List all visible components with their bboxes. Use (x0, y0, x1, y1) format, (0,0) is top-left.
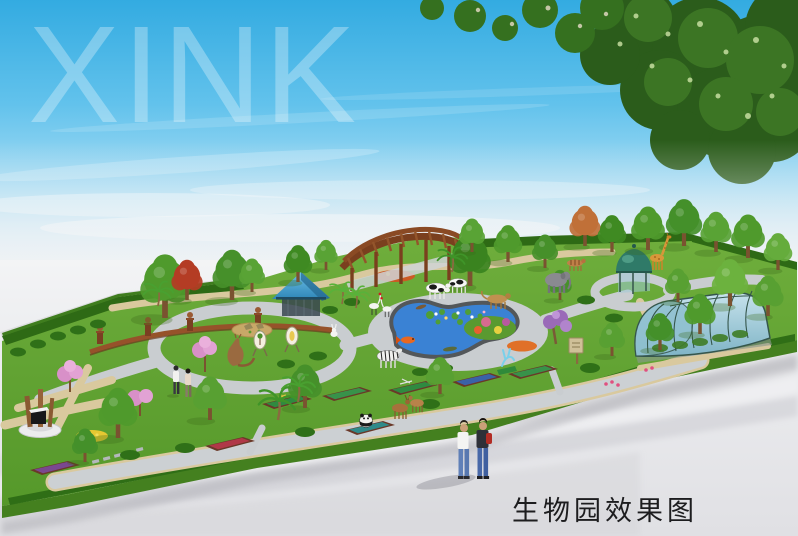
rock-garden-circle (232, 323, 272, 337)
caption-text: 生物园效果图 (512, 496, 698, 526)
panda-statue (360, 414, 373, 428)
xink-watermark: XINK (28, 0, 358, 152)
rendering-canvas: XINK (0, 0, 798, 536)
